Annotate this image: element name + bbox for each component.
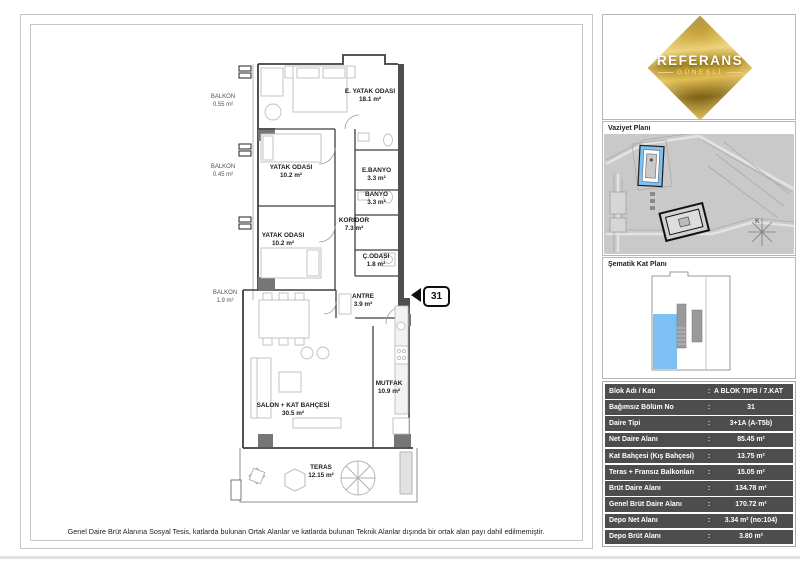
room-label-terrace: TERAS12.15 m² xyxy=(293,464,349,481)
floor-plan-drawing xyxy=(195,50,465,515)
balcony-label-3: BALKON1.9 m² xyxy=(201,290,249,306)
table-row: Net Daire Alanı:85.45 m² xyxy=(605,433,793,448)
table-row: Kat Bahçesi (Kış Bahçesi):13.75 m² xyxy=(605,449,793,464)
table-row: Bağımsız Bölüm No:31 xyxy=(605,400,793,415)
unit-number-badge: 31 xyxy=(423,286,450,307)
table-row: Depo Brüt Alanı:3.80 m² xyxy=(605,530,793,545)
room-label-bedroom-1: YATAK ODASI10.2 m² xyxy=(263,164,319,181)
room-label-corridor: KORIDOR7.3 m² xyxy=(331,217,377,234)
site-plan-label: Vaziyet Planı xyxy=(603,122,795,134)
table-row: Depo Net Alanı:3.34 m² (no:104) xyxy=(605,514,793,529)
room-label-kitchen: MUTFAK10.9 m² xyxy=(369,380,409,397)
entrance-arrow-icon xyxy=(411,288,421,302)
table-row: Brüt Daire Alanı:134.78 m² xyxy=(605,481,793,496)
logo-panel: REFERANS GÜNEŞLİ xyxy=(602,14,796,120)
table-row: Daire Tipi:3+1A (A-T5b) xyxy=(605,416,793,431)
logo: REFERANS GÜNEŞLİ xyxy=(603,53,796,76)
page-bottom-edge xyxy=(0,556,800,559)
disclaimer-text: Genel Daire Brüt Alanına Sosyal Tesis, k… xyxy=(40,527,572,536)
table-row: Blok Adı / Katı:A BLOK TIPB / 7.KAT xyxy=(605,384,793,399)
room-label-bedroom-2: YATAK ODASI10.2 m² xyxy=(255,232,311,249)
logo-subtitle: GÜNEŞLİ xyxy=(677,69,723,76)
balcony-label-2: BALKON0.45 m² xyxy=(199,164,247,180)
schematic-plan-drawing xyxy=(603,270,795,376)
room-label-living-room: SALON + KAT BAHÇESİ30.5 m² xyxy=(243,402,343,419)
floor-plan: E. YATAK ODASI18.1 m² YATAK ODASI10.2 m²… xyxy=(195,50,465,515)
logo-title: REFERANS xyxy=(657,53,743,68)
unit-info-table: Blok Adı / Katı:A BLOK TIPB / 7.KAT Bağı… xyxy=(602,381,796,547)
site-plan-panel: Vaziyet Planı xyxy=(602,121,796,256)
balcony-label-1: BALKON0.55 m² xyxy=(199,94,247,110)
logo-rule-left xyxy=(658,72,673,73)
room-label-laundry: Ç.ODASI1.8 m² xyxy=(353,253,399,270)
logo-subtitle-row: GÜNEŞLİ xyxy=(658,69,742,76)
room-label-ensuite-bath: E.BANYO3.3 m² xyxy=(355,167,398,184)
floor-plan-sheet: E. YATAK ODASI18.1 m² YATAK ODASI10.2 m²… xyxy=(0,0,800,566)
schematic-plan-label: Şematik Kat Planı xyxy=(603,258,795,270)
room-label-bathroom: BANYO3.3 m² xyxy=(355,191,398,208)
compass-north-label: K xyxy=(755,218,760,225)
table-row: Teras + Fransız Balkonları:15.05 m² xyxy=(605,465,793,480)
schematic-plan-panel: Şematik Kat Planı xyxy=(602,257,796,379)
table-row: Genel Brüt Daire Alanı:170.72 m² xyxy=(605,497,793,512)
room-label-entry: ANTRE3.9 m² xyxy=(341,293,385,310)
room-label-master-bedroom: E. YATAK ODASI18.1 m² xyxy=(335,88,405,105)
logo-rule-right xyxy=(727,72,742,73)
site-plan-map xyxy=(603,134,795,254)
